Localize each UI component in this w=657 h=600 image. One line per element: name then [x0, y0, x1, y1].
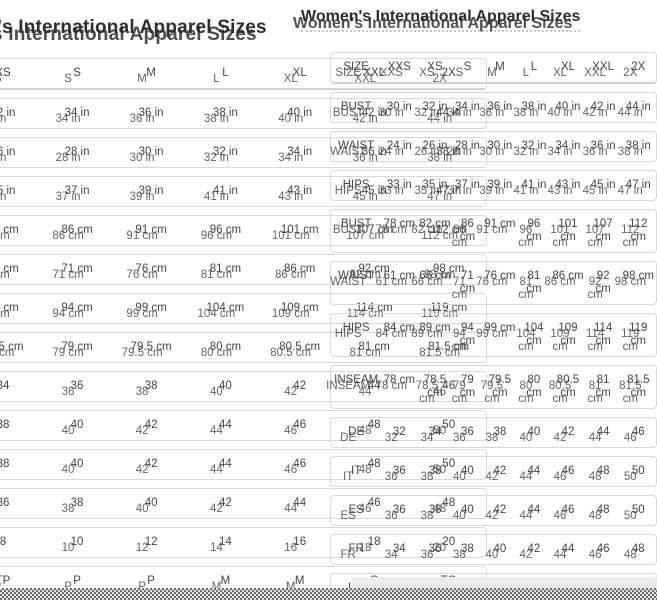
table-cell: 119 cm [621, 313, 657, 357]
column-header: L [518, 52, 551, 84]
table-cell: 38 in [518, 92, 551, 123]
column-header: S [453, 52, 482, 84]
table-cell: 32 in [188, 137, 262, 168]
table-cell: 92 cm [586, 261, 621, 305]
table-cell: 36 [381, 456, 417, 487]
table-cell: 101 cm [262, 215, 337, 246]
table-row: FR3436384042444648 [330, 534, 657, 565]
table-cell: 36 in [586, 131, 621, 162]
row-label: WAIST [330, 261, 381, 305]
column-header: 2X [621, 52, 657, 84]
table-cell: 36 in [114, 98, 189, 129]
table-cell: 81 cm [188, 254, 262, 285]
table-cell: 40 [40, 449, 114, 480]
table-cell: 91 cm [482, 209, 517, 253]
table-cell: 78 cm [381, 209, 417, 253]
table-cell: 36 [381, 495, 417, 526]
table-cell: 96 cm [188, 215, 262, 246]
table-cell: 32 in [518, 131, 551, 162]
table-cell: 89 cm [0, 293, 40, 324]
table-cell: 98 cm [621, 261, 657, 305]
table-cell: 34 in [262, 137, 337, 168]
table-row: HIPS33 in35 in37 in39 in41 in43 in45 in4… [330, 170, 657, 201]
table-cell: 94 cm [40, 293, 114, 324]
table-cell: 41 in [188, 176, 262, 207]
table-cell: 79 cm [453, 365, 482, 409]
table-cell: 37 in [453, 170, 482, 201]
table-cell: 34 [381, 534, 417, 565]
table-cell: 81 cm [518, 261, 551, 305]
table-cell: 80.5 cm [550, 365, 585, 409]
table-cell: 32 [381, 417, 417, 448]
table-cell: 37 in [40, 176, 114, 207]
table-row: HIPS84 cm89 cm94 cm99 cm104 cm109 cm114 … [330, 313, 657, 357]
row-label: WAIST [330, 131, 381, 162]
table-row: ES3638404244464850 [330, 495, 657, 526]
table-cell: 44 [188, 410, 262, 441]
table-cell: 82 cm [417, 209, 452, 253]
table-cell: 86 cm [262, 254, 337, 285]
table-cell: 38 [40, 488, 114, 519]
table-cell: 36 [0, 488, 40, 519]
table-cell: 43 in [262, 176, 337, 207]
row-label: IT [330, 456, 381, 487]
size-corner-cell: SIZE [330, 52, 381, 84]
table-cell: 30 in [114, 137, 189, 168]
column-header: XXS [381, 52, 417, 84]
table-cell: 48 [586, 456, 621, 487]
column-header: XL [262, 58, 337, 90]
table-cell: 50 [621, 456, 657, 487]
table-cell: 61 cm [381, 261, 417, 305]
table-cell: 71 cm [40, 254, 114, 285]
table-cell: 26 in [417, 131, 452, 162]
table-cell: 46 [550, 456, 585, 487]
table-cell: 80 cm [518, 365, 551, 409]
horizontal-scrollbar[interactable] [0, 588, 657, 600]
table-cell: 16 [262, 527, 337, 558]
table-cell: 40 [453, 456, 482, 487]
table-cell: 42 [262, 371, 337, 402]
table-cell: 35 in [0, 176, 40, 207]
table-cell: 42 [482, 456, 517, 487]
table-cell: 36 [40, 371, 114, 402]
table-row: INSEAM78 cm78.5 cm79 cm79.5 cm80 cm80.5 … [330, 365, 657, 409]
table-cell: 28 in [453, 131, 482, 162]
row-label: DE [330, 417, 381, 448]
table-cell: 104 cm [188, 293, 262, 324]
page: Women's International Apparel Sizes Wome… [0, 0, 657, 600]
table-cell: 86 cm [453, 209, 482, 253]
table-cell: 66 cm [417, 261, 452, 305]
table-cell: 78.5 cm [0, 332, 40, 363]
table-cell: 48 [621, 534, 657, 565]
table-cell: 43 in [550, 170, 585, 201]
table-cell: 99 cm [482, 313, 517, 357]
column-header: XL [550, 52, 585, 84]
table-cell: 44 [188, 449, 262, 480]
table-cell: 32 in [417, 92, 452, 123]
table-cell: 28 in [40, 137, 114, 168]
table-row: BUST30 in32 in34 in36 in38 in40 in42 in4… [330, 92, 657, 123]
table-row: WAIST24 in26 in28 in30 in32 in34 in36 in… [330, 131, 657, 162]
table-cell: 42 [188, 488, 262, 519]
table-cell: 48 [586, 495, 621, 526]
table-cell: 66 cm [0, 254, 40, 285]
table-cell: 14 [188, 527, 262, 558]
table-cell: 40 [518, 417, 551, 448]
table-cell: 34 in [40, 98, 114, 129]
table-cell: 40 [188, 371, 262, 402]
table-cell: 82 cm [0, 215, 40, 246]
table-cell: 39 in [482, 170, 517, 201]
table-cell: 46 [621, 417, 657, 448]
table-cell: 89 cm [417, 313, 452, 357]
column-header: L [188, 58, 262, 90]
table-cell: 42 [114, 410, 189, 441]
table-cell: 79.5 cm [114, 332, 189, 363]
table-cell: 38 [482, 417, 517, 448]
table-cell: 81 cm [586, 365, 621, 409]
table-cell: 44 [262, 488, 337, 519]
table-cell: 76 cm [482, 261, 517, 305]
table-cell: 114 cm [586, 313, 621, 357]
table-cell: 39 in [114, 176, 189, 207]
table-cell: 99 cm [114, 293, 189, 324]
table-cell: 38 in [188, 98, 262, 129]
table-cell: 44 [518, 456, 551, 487]
table-cell: 45 in [586, 170, 621, 201]
table-cell: 33 in [381, 170, 417, 201]
table-cell: 80.5 cm [262, 332, 337, 363]
table-cell: 78.5 cm [417, 365, 452, 409]
table-cell: 91 cm [114, 215, 189, 246]
table-cell: 38 in [621, 131, 657, 162]
table-row: BUST78 cm82 cm86 cm91 cm96 cm101 cm107 c… [330, 209, 657, 253]
table-cell: 71 cm [453, 261, 482, 305]
table-cell: 36 in [482, 92, 517, 123]
table-cell: 109 cm [550, 313, 585, 357]
table-cell: 42 in [586, 92, 621, 123]
table-cell: 79 cm [40, 332, 114, 363]
table-cell: 38 [453, 534, 482, 565]
table-cell: 79.5 cm [482, 365, 517, 409]
table-cell: 38 [0, 410, 40, 441]
table-cell: 40 [453, 495, 482, 526]
table-cell: 44 [586, 417, 621, 448]
table-cell: 41 in [518, 170, 551, 201]
table-cell: 24 in [381, 131, 417, 162]
table-cell: 94 cm [453, 313, 482, 357]
table-cell: 101 cm [550, 209, 585, 253]
table-header-row: SIZEXXSXSSMLXLXXL2X [330, 52, 657, 84]
row-label: BUST [330, 209, 381, 253]
table-cell: 44 [550, 534, 585, 565]
size-conversion-table-ghost: SIZEXXSXSSMLXLXXL2XBUST30 in32 in34 in36… [330, 44, 657, 600]
table-cell: 104 cm [518, 313, 551, 357]
table-cell: 78 cm [381, 365, 417, 409]
table-cell: 34 [0, 371, 40, 402]
table-cell: 80 cm [188, 332, 262, 363]
table-cell: 44 in [621, 92, 657, 123]
row-label: BUST [330, 92, 381, 123]
row-label: HIPS [330, 170, 381, 201]
table-cell: 12 [114, 527, 189, 558]
row-label: ES [330, 495, 381, 526]
table-cell: 34 in [453, 92, 482, 123]
table-cell: 40 [482, 534, 517, 565]
page-title: Women's International Apparel Sizes [0, 17, 267, 39]
table-cell: 46 [262, 410, 337, 441]
table-cell: 34 in [550, 131, 585, 162]
table-cell: 46 [550, 495, 585, 526]
table-row: WAIST61 cm66 cm71 cm76 cm81 cm86 cm92 cm… [330, 261, 657, 305]
table-cell: 109 cm [262, 293, 337, 324]
column-header: XS [0, 58, 40, 90]
table-cell: 42 [550, 417, 585, 448]
table-cell: 35 in [417, 170, 452, 201]
table-cell: 26 in [0, 137, 40, 168]
table-cell: 38 [417, 456, 452, 487]
table-row: IT3638404244464850 [330, 456, 657, 487]
table-row: DE3234363840424446 [330, 417, 657, 448]
table-cell: 40 in [550, 92, 585, 123]
table-cell: 42 [518, 534, 551, 565]
table-cell: 34 [417, 417, 452, 448]
table-cell: 42 [482, 495, 517, 526]
table-cell: 40 [40, 410, 114, 441]
table-cell: 40 [114, 488, 189, 519]
table-cell: 32 in [0, 98, 40, 129]
table-cell: 38 [0, 449, 40, 480]
column-header: XS [417, 52, 452, 84]
table-cell: 86 cm [550, 261, 585, 305]
column-header: S [40, 58, 114, 90]
row-label: INSEAM [330, 365, 381, 409]
column-header: M [114, 58, 189, 90]
table-cell: 46 [586, 534, 621, 565]
table-cell: 50 [621, 495, 657, 526]
table-cell: 107 cm [586, 209, 621, 253]
page-title-ghost: Women's International Apparel Sizes [301, 8, 580, 32]
table-cell: 44 [518, 495, 551, 526]
table-cell: 30 in [381, 92, 417, 123]
table-cell: 81.5 cm [621, 365, 657, 409]
row-label: FR [330, 534, 381, 565]
row-label: HIPS [330, 313, 381, 357]
table-cell: 96 cm [518, 209, 551, 253]
table-cell: 47 in [621, 170, 657, 201]
column-header: M [482, 52, 517, 84]
table-cell: 40 in [262, 98, 337, 129]
table-cell: 86 cm [40, 215, 114, 246]
table-cell: 38 [114, 371, 189, 402]
table-cell: 42 [114, 449, 189, 480]
table-cell: 112 cm [621, 209, 657, 253]
table-cell: 30 in [482, 131, 517, 162]
table-cell: 36 [417, 534, 452, 565]
table-cell: 84 cm [381, 313, 417, 357]
table-cell: 46 [262, 449, 337, 480]
table-cell: 76 cm [114, 254, 189, 285]
table-cell: 8 [0, 527, 40, 558]
table-cell: 38 [417, 495, 452, 526]
table-cell: 10 [40, 527, 114, 558]
column-header: XXL [586, 52, 621, 84]
table-cell: 36 [453, 417, 482, 448]
